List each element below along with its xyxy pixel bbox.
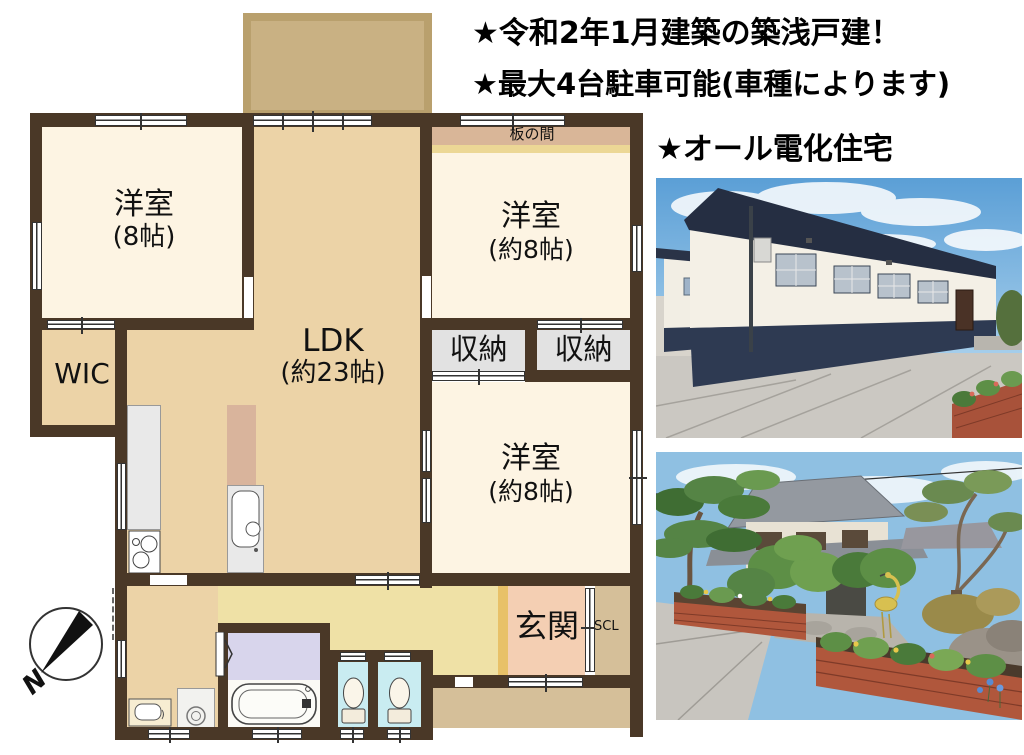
label-ldk: LDK xyxy=(283,325,383,358)
door-opening xyxy=(150,575,187,585)
hallway-b xyxy=(330,586,433,650)
window-marker xyxy=(47,320,115,329)
window-marker xyxy=(340,729,364,739)
label-storage-left: 収納 xyxy=(436,334,521,364)
deck xyxy=(243,13,432,118)
porch xyxy=(433,688,630,728)
washer-drain xyxy=(184,704,208,728)
headline-3: ★オール電化住宅 xyxy=(656,124,893,168)
itanoma-yellow-strip xyxy=(432,145,630,153)
photo-house-exterior xyxy=(656,178,1022,438)
hallway-a xyxy=(218,586,330,623)
room-ldk-upper xyxy=(254,127,420,330)
toilet-left xyxy=(340,676,367,726)
island-counter xyxy=(227,405,256,485)
bathtub xyxy=(230,682,318,726)
flyer-canvas: ★令和2年1月建築の築浅戸建！ ★最大4台駐車可能(車種によります) ★オール電… xyxy=(0,0,1024,755)
wall-segment xyxy=(218,623,330,633)
compass: N xyxy=(18,598,110,696)
label-scl: SCL xyxy=(594,620,632,634)
label-wic: WIC xyxy=(52,359,112,388)
wall-segment xyxy=(630,113,643,737)
label-bedroom-top-right-size: (約8帖) xyxy=(466,237,596,263)
toilet-right xyxy=(386,676,413,726)
floorplan: 洋室 (8帖) 板の間 洋室 (約8帖) LDK (約23帖) WIC 収納 収… xyxy=(0,0,650,755)
window-marker xyxy=(32,222,42,290)
vanity-sink xyxy=(128,698,172,727)
label-ldk-size: (約23帖) xyxy=(268,360,398,387)
bath-folding-door xyxy=(215,632,233,678)
wall-segment xyxy=(30,425,127,437)
closet-door-marker xyxy=(537,320,623,329)
label-itanoma: 板の間 xyxy=(482,127,582,143)
closet-door-marker xyxy=(432,371,525,381)
window-marker xyxy=(508,677,583,687)
label-storage-right: 収納 xyxy=(541,334,626,364)
window-marker xyxy=(117,463,126,530)
window-marker xyxy=(253,115,372,126)
photo-garden xyxy=(656,452,1022,720)
bathroom-lavender xyxy=(228,633,320,680)
door-marker xyxy=(355,575,420,585)
kitchen-counter xyxy=(127,405,161,530)
window-marker xyxy=(95,115,187,126)
step-opening xyxy=(455,677,473,687)
door-opening xyxy=(422,276,431,318)
label-bedroom-middle-right: 洋室 xyxy=(471,443,591,475)
label-bedroom-middle-right-size: (約8帖) xyxy=(466,479,596,505)
label-bedroom-top-left: 洋室 xyxy=(84,189,204,221)
door-marker xyxy=(422,478,431,523)
door-marker xyxy=(384,652,411,661)
hallway-c xyxy=(433,586,498,675)
wall-segment xyxy=(525,370,640,382)
label-genkan: 玄関 xyxy=(508,610,586,644)
wall-segment xyxy=(115,330,127,740)
genkan-step xyxy=(498,586,508,675)
closet-door-marker xyxy=(422,430,431,472)
window-marker xyxy=(632,430,642,525)
window-marker xyxy=(252,729,302,739)
window-marker xyxy=(387,729,411,739)
kitchen-sink xyxy=(228,487,264,571)
door-opening xyxy=(244,277,253,318)
eave-dashed-line xyxy=(112,588,114,640)
window-marker xyxy=(117,640,126,678)
window-marker xyxy=(632,225,642,272)
wall-segment xyxy=(320,623,330,740)
stove xyxy=(128,530,161,574)
label-bedroom-top-left-size: (8帖) xyxy=(84,224,204,251)
label-bedroom-top-right: 洋室 xyxy=(471,201,591,233)
door-marker xyxy=(340,652,366,661)
window-marker xyxy=(148,729,190,739)
